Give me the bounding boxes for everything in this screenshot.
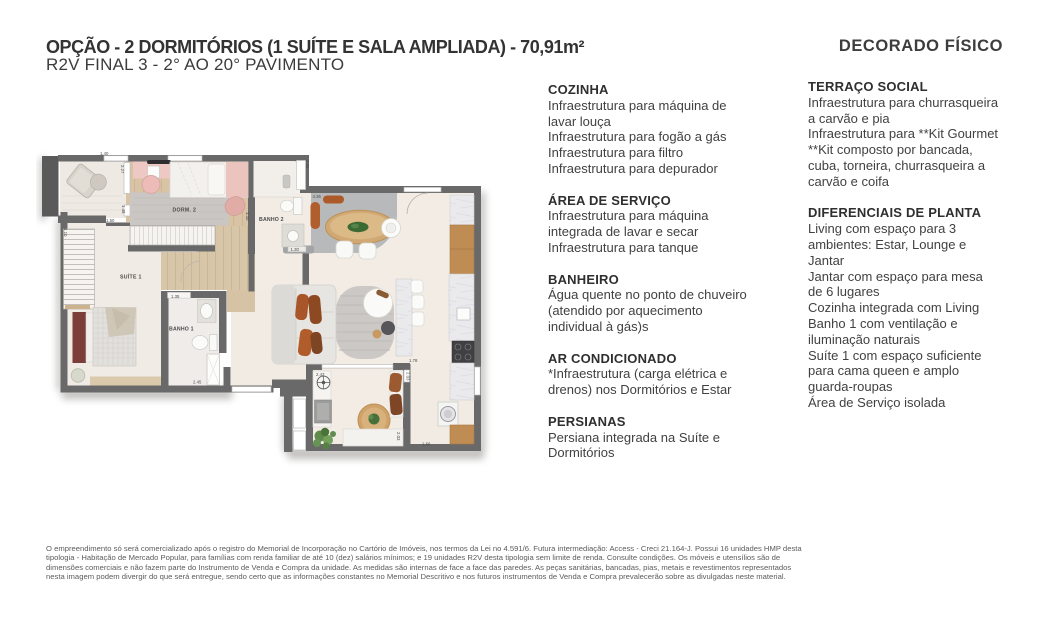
- svg-text:1.35: 1.35: [171, 294, 180, 299]
- svg-text:1.30: 1.30: [291, 247, 300, 252]
- svg-text:2.27: 2.27: [120, 165, 125, 174]
- svg-text:1.66: 1.66: [422, 442, 431, 447]
- svg-text:2.03: 2.03: [406, 372, 411, 381]
- svg-text:2.03: 2.03: [396, 432, 401, 441]
- svg-text:4.36: 4.36: [313, 194, 322, 199]
- svg-text:1.40: 1.40: [100, 151, 109, 156]
- svg-text:BANHO 1: BANHO 1: [169, 327, 194, 333]
- svg-text:SUÍTE 1: SUÍTE 1: [120, 273, 142, 281]
- svg-text:4.10: 4.10: [63, 228, 68, 237]
- svg-text:3.30: 3.30: [245, 212, 250, 221]
- svg-text:2.92: 2.92: [305, 160, 310, 169]
- svg-text:DORM. 2: DORM. 2: [173, 208, 197, 214]
- svg-text:1.50: 1.50: [106, 218, 115, 223]
- svg-text:2.45: 2.45: [193, 380, 202, 385]
- svg-text:BANHO 2: BANHO 2: [259, 217, 284, 223]
- svg-text:2.43: 2.43: [316, 372, 325, 377]
- svg-text:1.48: 1.48: [121, 205, 126, 214]
- svg-text:1.78: 1.78: [409, 358, 418, 363]
